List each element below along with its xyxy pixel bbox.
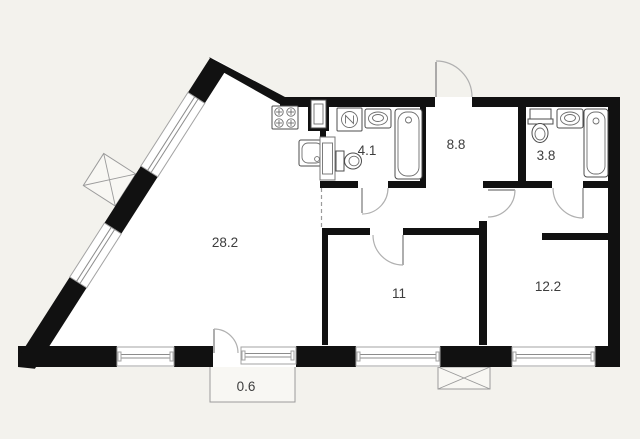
wall-bottom-3 bbox=[296, 346, 356, 367]
wall-corridor-bottom-left bbox=[322, 228, 370, 235]
wall-hall-bath2 bbox=[518, 107, 526, 184]
ventilation-shaft-bottom-icon bbox=[438, 367, 490, 389]
window-balcony bbox=[241, 347, 296, 364]
wall-bottom-5 bbox=[595, 346, 620, 367]
wall-top-right bbox=[472, 97, 620, 107]
wall-bottom-2 bbox=[174, 346, 213, 367]
room-label-bathroom2: 3.8 bbox=[537, 148, 556, 163]
room-label-balcony: 0.6 bbox=[237, 379, 256, 394]
bathroom1-bathtub-icon bbox=[395, 109, 422, 179]
room-label-hallway: 8.8 bbox=[447, 137, 466, 152]
bathroom1-sink-icon bbox=[365, 109, 391, 128]
washing-machine-icon bbox=[337, 108, 362, 131]
kitchen-cabinet-icon bbox=[311, 100, 326, 128]
duct-shaft-icon bbox=[320, 137, 335, 180]
wall-right bbox=[608, 97, 620, 367]
window-bedroom2 bbox=[512, 347, 595, 366]
room-label-bedroom1: 11 bbox=[392, 286, 406, 301]
room-label-bedroom2: 12.2 bbox=[535, 279, 561, 294]
bathroom2-sink-icon bbox=[557, 109, 583, 128]
wall-bottom-4 bbox=[440, 346, 512, 367]
floor-plan-drawing: 28.2 4.1 8.8 3.8 11 12.2 0.6 bbox=[0, 0, 640, 439]
wall-bedroom2-stub bbox=[542, 233, 608, 240]
wall-bath1-bottom-right bbox=[388, 181, 426, 188]
window-living bbox=[117, 347, 174, 366]
room-label-bathroom1: 4.1 bbox=[358, 143, 377, 158]
floor-plan-canvas: 28.2 4.1 8.8 3.8 11 12.2 0.6 bbox=[0, 0, 640, 439]
room-label-living: 28.2 bbox=[212, 235, 238, 250]
wall-bedroom1-bedroom2 bbox=[479, 221, 487, 345]
wall-bath2-bottom-right bbox=[583, 181, 610, 188]
wall-bedroom1-left bbox=[322, 228, 328, 345]
wall-corridor-bottom-right bbox=[403, 228, 487, 235]
wall-hall-bottom bbox=[483, 181, 552, 188]
stove-icon bbox=[272, 106, 298, 129]
wall-top-left bbox=[280, 97, 435, 107]
bathroom2-bathtub-icon bbox=[584, 109, 608, 177]
entry-door bbox=[436, 61, 472, 97]
window-bedroom1 bbox=[356, 347, 440, 366]
wall-bath1-bottom-left bbox=[320, 181, 358, 188]
